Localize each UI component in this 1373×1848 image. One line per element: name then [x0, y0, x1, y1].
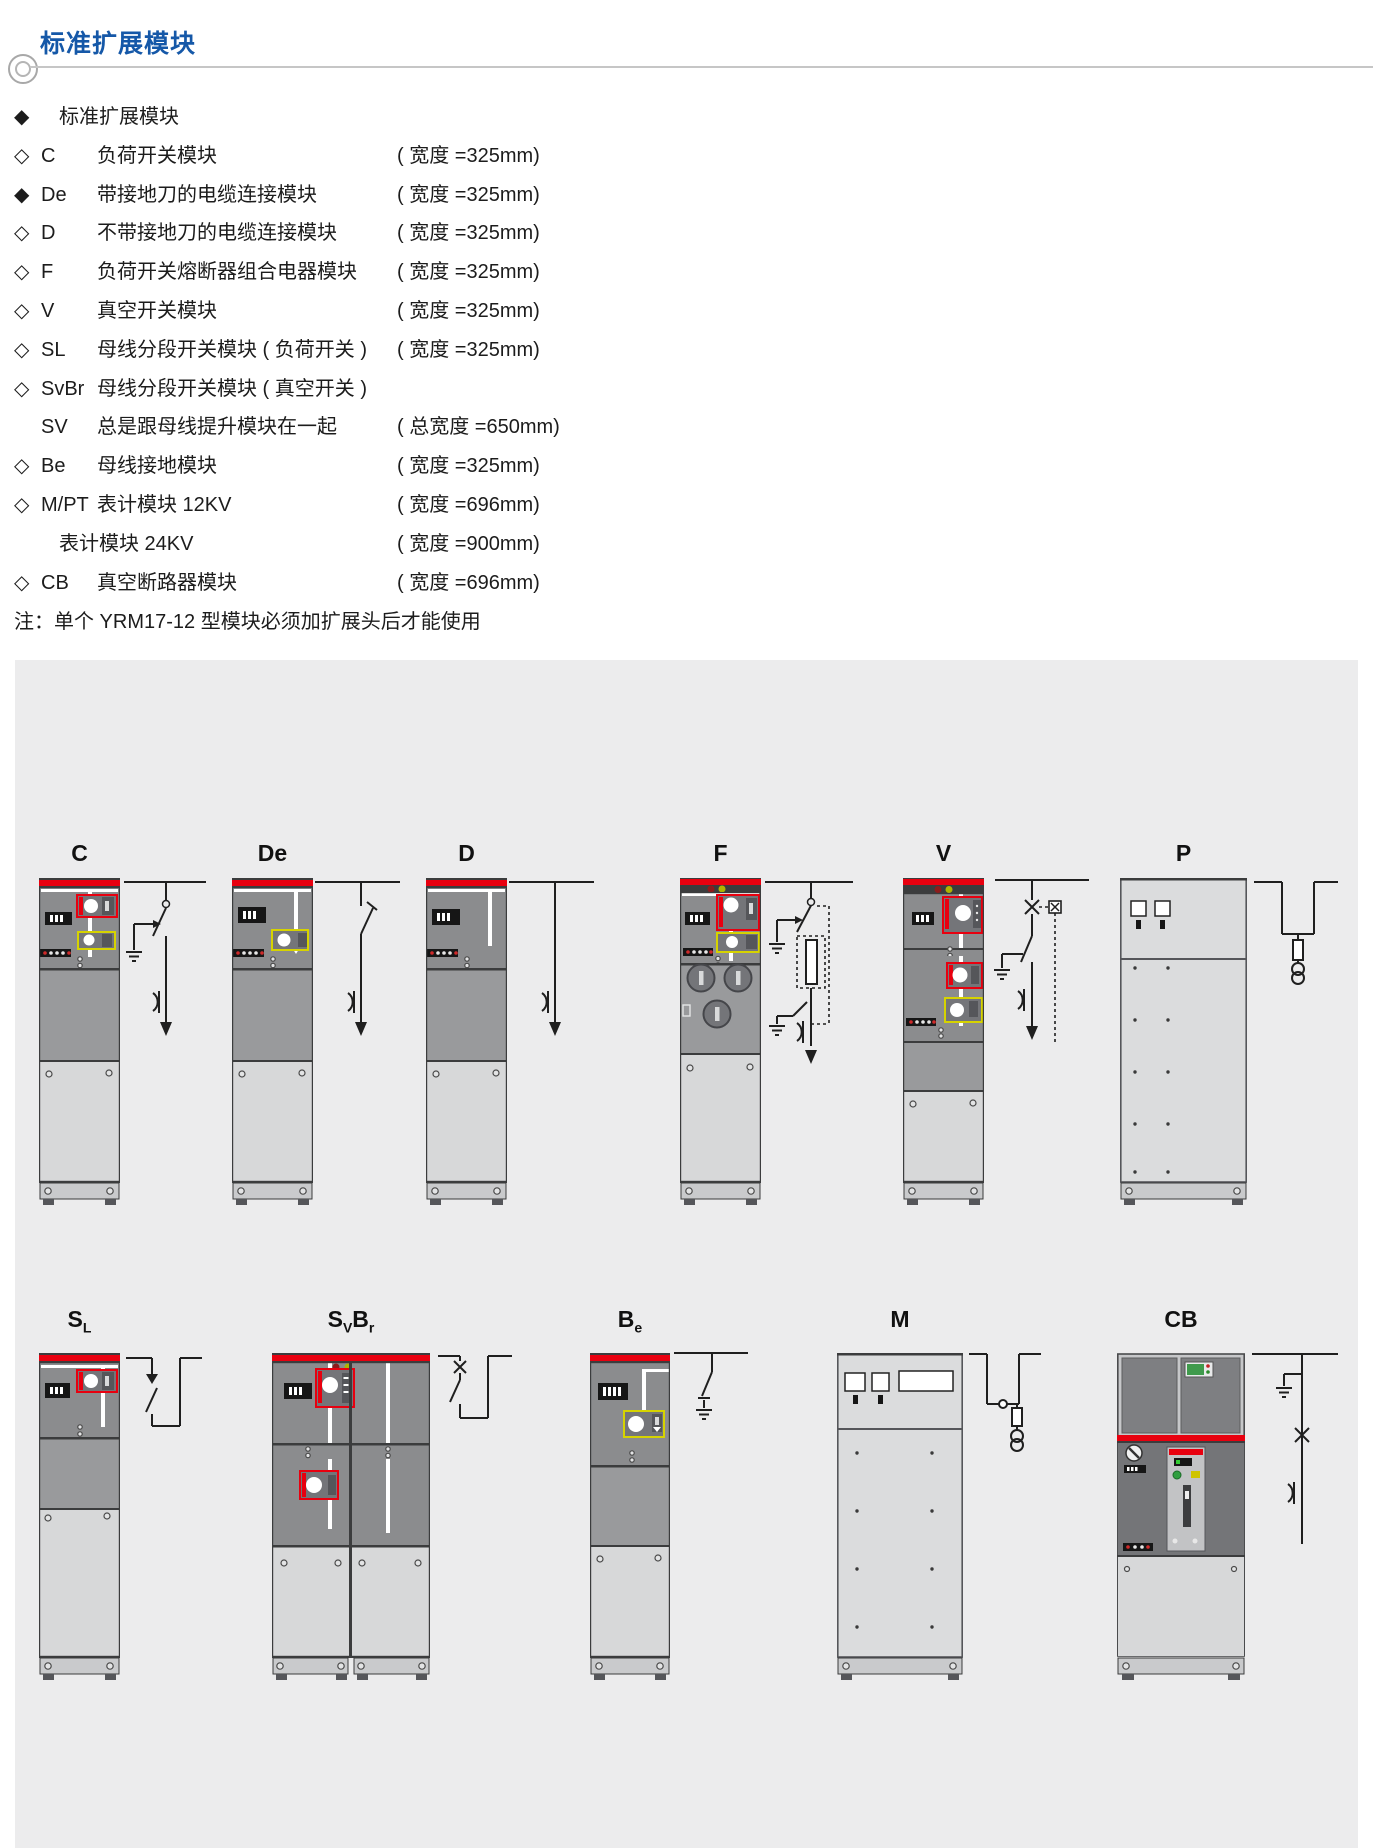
- module-code: V: [41, 292, 97, 331]
- legend-row: 表计模块 24KV ( 宽度 =900mm): [14, 525, 714, 564]
- module-width: ( 宽度 =900mm): [397, 525, 540, 564]
- breaker-contact: [454, 1361, 466, 1373]
- module-sl: SL: [39, 1306, 209, 1686]
- module-c-label: C: [39, 840, 120, 867]
- diamond-marker-icon: ◇: [14, 137, 41, 176]
- module-code: SV: [41, 408, 97, 447]
- schematic-d: [509, 874, 594, 1039]
- ground-symbol: [769, 944, 785, 953]
- diamond-marker-icon: ◆: [14, 98, 41, 137]
- module-m: M: [837, 1306, 1052, 1686]
- cabinet-sl: [39, 1353, 120, 1680]
- fuse-symbol: [806, 940, 817, 984]
- red-strip: [232, 880, 313, 886]
- red-strip: [680, 879, 761, 885]
- module-code: De: [41, 176, 97, 215]
- voltage-indicator: [1288, 1482, 1294, 1504]
- yellow-operator-panel: [945, 998, 982, 1022]
- fuse-symbol: [1012, 1408, 1022, 1426]
- schematic-v: [987, 874, 1095, 1074]
- module-width: ( 宽度 =325mm): [397, 176, 540, 215]
- indicator-strip: [233, 949, 264, 957]
- diamond-marker-icon: ◇: [14, 253, 41, 292]
- pt-symbol: [1292, 963, 1304, 984]
- ground-symbol: [1276, 1388, 1292, 1397]
- legend-row: ◇ CB 真空断路器模块 ( 宽度 =696mm): [14, 564, 714, 603]
- module-d-label: D: [426, 840, 507, 867]
- red-operator-panel: [77, 1370, 117, 1392]
- module-description: 负荷开关模块: [97, 137, 217, 176]
- module-d: D: [426, 840, 598, 1210]
- page-title: 标准扩展模块: [40, 24, 196, 60]
- indicator-strip: [906, 1018, 936, 1026]
- ground-symbol: [126, 952, 142, 961]
- legend-row: ◇ F 负荷开关熔断器组合电器模块 ( 宽度 =325mm): [14, 253, 714, 292]
- module-cb-label: CB: [1117, 1306, 1245, 1333]
- yellow-operator-panel: [272, 930, 308, 950]
- diamond-marker-icon: [14, 408, 41, 447]
- module-description: 真空开关模块: [97, 292, 217, 331]
- voltage-indicator: [153, 991, 159, 1013]
- module-code: F: [41, 253, 97, 292]
- red-operator-panel-2: [300, 1471, 338, 1499]
- indicator-strip: [683, 948, 713, 956]
- cabinet-p: [1120, 878, 1247, 1205]
- indicator-strip: [40, 949, 71, 957]
- diamond-marker-icon: ◇: [14, 486, 41, 525]
- module-de-label: De: [232, 840, 313, 867]
- module-code: SL: [41, 331, 97, 370]
- red-strip: [272, 1355, 430, 1361]
- diamond-marker-icon: ◇: [14, 564, 41, 603]
- red-strip: [39, 880, 120, 886]
- pt-symbol: [1011, 1430, 1023, 1451]
- module-width: ( 总宽度 =650mm): [397, 408, 560, 447]
- ground-symbol: [994, 970, 1010, 979]
- diamond-marker-icon: ◇: [14, 370, 41, 409]
- legend-row: ◆ 标准扩展模块: [14, 98, 714, 137]
- module-description: 母线分段开关模块 ( 真空开关 ): [97, 370, 367, 409]
- module-description: 表计模块 24KV: [59, 525, 193, 564]
- voltage-indicator: [797, 1021, 803, 1043]
- red-strip: [590, 1355, 670, 1361]
- red-operator-panel: [316, 1369, 354, 1407]
- red-strip: [39, 1355, 120, 1361]
- protection-relay-display: [1185, 1362, 1213, 1377]
- red-strip: [426, 880, 507, 886]
- module-width: ( 宽度 =696mm): [397, 564, 540, 603]
- schematic-sl: [124, 1348, 204, 1443]
- yellow-operator-panel: [717, 933, 759, 952]
- schematic-f: [763, 874, 868, 1079]
- cabinet-d: [426, 878, 507, 1205]
- cabinet-de: [232, 878, 313, 1205]
- digital-display: [685, 912, 710, 925]
- red-strip: [1117, 1435, 1245, 1441]
- cabinet-c: [39, 878, 120, 1205]
- bay-divider: [349, 1363, 352, 1656]
- yellow-operator-panel: [78, 932, 115, 949]
- module-code: SvBr: [41, 370, 97, 409]
- module-code: D: [41, 214, 97, 253]
- module-code: C: [41, 137, 97, 176]
- module-svbr: SVBr: [272, 1306, 517, 1686]
- cabinet-f: [680, 878, 761, 1205]
- module-v-label: V: [903, 840, 984, 867]
- cabinet-m: [837, 1353, 963, 1680]
- module-svbr-label: SVBr: [272, 1306, 430, 1336]
- red-operator-panel: [717, 895, 759, 930]
- module-p: P: [1120, 840, 1342, 1210]
- voltage-indicator: [1018, 989, 1024, 1011]
- module-width: ( 宽度 =325mm): [397, 331, 540, 370]
- voltage-indicator: [348, 991, 354, 1013]
- module-description: 负荷开关熔断器组合电器模块: [97, 253, 357, 292]
- module-be-label: Be: [590, 1306, 670, 1336]
- module-width: ( 宽度 =696mm): [397, 486, 540, 525]
- module-cb: CB: [1117, 1306, 1342, 1686]
- diamond-marker-icon: ◇: [14, 331, 41, 370]
- module-width: ( 宽度 =325mm): [397, 292, 540, 331]
- cabinet-svbr: [272, 1353, 430, 1680]
- legend-rows: ◆ 标准扩展模块 ◇ C 负荷开关模块 ( 宽度 =325mm) ◆ De 带接…: [14, 98, 714, 642]
- diamond-marker-icon: ◇: [14, 292, 41, 331]
- page: 标准扩展模块 ◆ 标准扩展模块 ◇ C 负荷开关模块 ( 宽度 =325mm) …: [0, 0, 1373, 1848]
- cabinet-cb: [1117, 1353, 1245, 1680]
- red-operator-panel: [943, 897, 982, 933]
- digital-display: [598, 1383, 628, 1400]
- legend-row: ◆ De 带接地刀的电缆连接模块 ( 宽度 =325mm): [14, 176, 714, 215]
- digital-display: [912, 912, 934, 925]
- diamond-marker-icon: ◆: [14, 176, 41, 215]
- legend-row: SV 总是跟母线提升模块在一起 ( 总宽度 =650mm): [14, 408, 714, 447]
- red-operator-panel-2: [947, 963, 982, 988]
- module-width: ( 宽度 =325mm): [397, 214, 540, 253]
- digital-display: [284, 1383, 312, 1399]
- ground-symbol: [696, 1410, 712, 1419]
- module-width: ( 宽度 =325mm): [397, 253, 540, 292]
- schematic-cb: [1250, 1348, 1340, 1563]
- schematic-svbr: [436, 1348, 514, 1448]
- voltage-indicator: [542, 991, 548, 1013]
- legend-row: ◇ V 真空开关模块 ( 宽度 =325mm): [14, 292, 714, 331]
- indicator-strip: [427, 949, 458, 957]
- indicator-strip: [1123, 1543, 1153, 1551]
- ground-symbol: [769, 1026, 785, 1035]
- legend-row: ◇ D 不带接地刀的电缆连接模块 ( 宽度 =325mm): [14, 214, 714, 253]
- module-description: 标准扩展模块: [59, 98, 179, 137]
- red-strip: [903, 879, 984, 885]
- legend-row: ◇ C 负荷开关模块 ( 宽度 =325mm): [14, 137, 714, 176]
- module-sl-label: SL: [39, 1306, 120, 1336]
- module-description: 母线接地模块: [97, 447, 217, 486]
- digital-display: [238, 907, 266, 923]
- module-description: 表计模块 12KV: [97, 486, 231, 525]
- legend-row: ◇ SL 母线分段开关模块 ( 负荷开关 ) ( 宽度 =325mm): [14, 331, 714, 370]
- schematic-be: [672, 1348, 750, 1433]
- cabinet-be: [590, 1353, 670, 1680]
- module-description: 不带接地刀的电缆连接模块: [97, 214, 337, 253]
- rotary-knob: [1126, 1445, 1142, 1461]
- breaker-mechanism: [1167, 1447, 1205, 1551]
- module-description: 母线分段开关模块 ( 负荷开关 ): [97, 331, 367, 370]
- module-de: De: [232, 840, 404, 1210]
- breaker-contact: [1025, 900, 1039, 914]
- diamond-marker-icon: ◇: [14, 447, 41, 486]
- module-v: V: [903, 840, 1098, 1210]
- module-code: [41, 98, 59, 137]
- module-be: Be: [590, 1306, 755, 1686]
- section-bullet-icon: [8, 54, 38, 84]
- digital-display: [432, 909, 460, 925]
- diamond-marker-icon: [14, 525, 41, 564]
- schematic-m: [967, 1348, 1043, 1460]
- red-operator-panel: [77, 895, 117, 917]
- digital-display: [1124, 1465, 1146, 1473]
- digital-display: [45, 1383, 70, 1398]
- module-code: Be: [41, 447, 97, 486]
- module-m-label: M: [837, 1306, 963, 1333]
- schematic-c: [122, 874, 206, 1039]
- module-f-label: F: [680, 840, 761, 867]
- legend-row: ◇ M/PT 表计模块 12KV ( 宽度 =696mm): [14, 486, 714, 525]
- module-description: 真空断路器模块: [97, 564, 237, 603]
- module-width: ( 宽度 =325mm): [397, 137, 540, 176]
- yellow-operator-panel: [624, 1411, 664, 1437]
- module-description: 总是跟母线提升模块在一起: [97, 408, 337, 447]
- fuse-symbol: [1293, 940, 1303, 960]
- legend-note: 注：单个 YRM17-12 型模块必须加扩展头后才能使用: [14, 602, 714, 642]
- module-code: CB: [41, 564, 97, 603]
- module-p-label: P: [1120, 840, 1247, 867]
- diamond-marker-icon: ◇: [14, 214, 41, 253]
- module-c: C: [39, 840, 209, 1210]
- schematic-de: [315, 874, 400, 1039]
- schematic-p: [1252, 874, 1340, 986]
- legend-row: ◇ SvBr 母线分段开关模块 ( 真空开关 ): [14, 370, 714, 409]
- cabinet-v: [903, 878, 984, 1205]
- module-description: 带接地刀的电缆连接模块: [97, 176, 317, 215]
- section-divider: [30, 66, 1373, 68]
- legend-row: ◇ Be 母线接地模块 ( 宽度 =325mm): [14, 447, 714, 486]
- busbar-line: [488, 889, 492, 946]
- module-f: F: [680, 840, 875, 1210]
- module-code: M/PT: [41, 486, 97, 525]
- module-width: ( 宽度 =325mm): [397, 447, 540, 486]
- digital-display: [45, 912, 72, 925]
- module-code: [41, 525, 59, 564]
